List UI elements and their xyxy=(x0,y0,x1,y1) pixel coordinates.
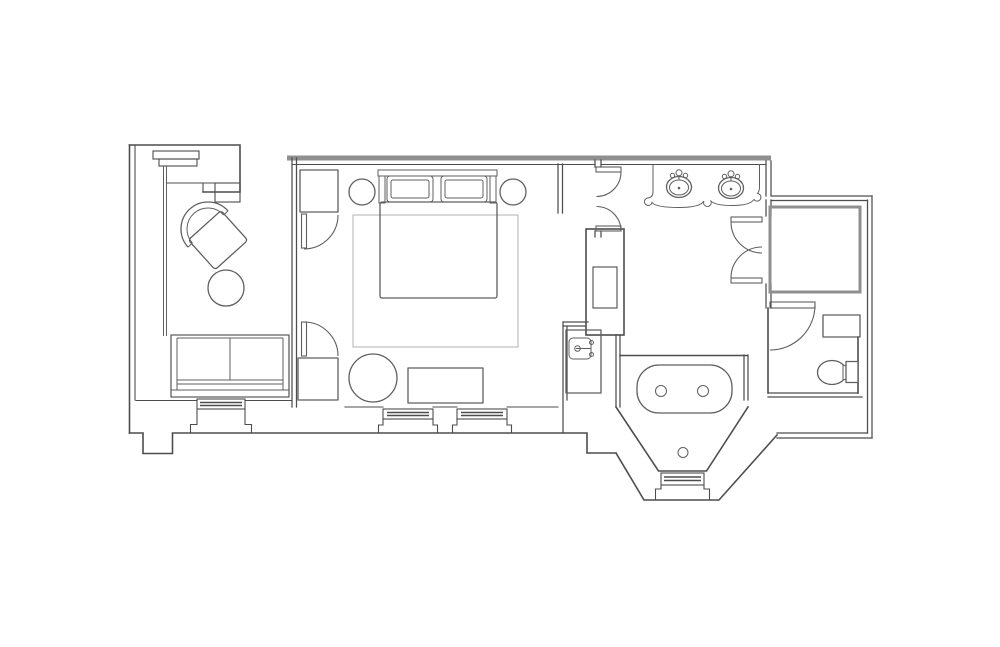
wc-walls xyxy=(768,308,858,393)
wet-bar xyxy=(566,330,601,393)
closet-door-leaf xyxy=(302,322,307,356)
bathtub xyxy=(637,365,732,413)
hall-lower-wall xyxy=(563,322,588,433)
service-shaft xyxy=(593,267,617,308)
bay-fixture xyxy=(678,448,688,458)
window-frame xyxy=(457,409,507,419)
sofa-cushions xyxy=(171,338,289,390)
mattress xyxy=(380,202,497,298)
window-glazing xyxy=(664,477,701,481)
bench xyxy=(408,368,483,403)
bedroom xyxy=(298,170,526,433)
door-swing xyxy=(770,305,815,350)
sitting-bay-window xyxy=(191,399,252,433)
southeast-wall xyxy=(777,433,872,438)
closet-door-leaf xyxy=(302,214,307,248)
east-wall xyxy=(868,196,873,438)
floor-plan-page xyxy=(0,0,1000,647)
closet-north xyxy=(300,170,338,249)
nightstand-left xyxy=(349,179,375,205)
closet-door-swing xyxy=(304,215,338,249)
sitting-bedroom-divider xyxy=(292,158,297,407)
window-glazing xyxy=(387,413,429,416)
door-leaf-upper xyxy=(731,217,762,222)
sitting-area xyxy=(170,191,289,433)
window-frame xyxy=(197,399,245,409)
wet-bar-counter xyxy=(566,330,601,393)
wc-shelf xyxy=(823,315,860,337)
door-swing-upper xyxy=(731,222,762,253)
door-leaf xyxy=(770,302,815,308)
window-frame xyxy=(383,409,433,419)
closet-box xyxy=(300,170,338,212)
closet-south xyxy=(298,322,338,400)
vanity-sink-left xyxy=(667,170,692,198)
entry-threshold xyxy=(153,151,199,159)
window-glazing xyxy=(200,403,242,406)
door-swing-lower xyxy=(731,247,762,278)
window-glazing xyxy=(461,413,503,416)
closet-box xyxy=(298,358,338,400)
armchair-seat xyxy=(188,211,247,270)
closet-door-swing xyxy=(304,322,338,356)
round-side-table xyxy=(208,270,244,306)
round-table xyxy=(349,354,397,402)
area-rug xyxy=(353,215,518,347)
shower-enclosure xyxy=(770,207,860,292)
tub-bay xyxy=(616,365,748,500)
sofa xyxy=(171,335,289,397)
entry-wall-line xyxy=(164,166,167,336)
bathroom-west-wall xyxy=(616,335,620,407)
armchair xyxy=(170,191,252,273)
nightstand-right xyxy=(500,179,526,205)
king-bed xyxy=(378,170,497,298)
wc-door xyxy=(770,302,815,350)
shower-room xyxy=(731,207,860,292)
partition-walls xyxy=(292,158,771,433)
door-swing-lower xyxy=(597,207,622,232)
entry-closet-nook xyxy=(130,145,241,336)
double-vanity xyxy=(644,165,760,208)
door-leaf-upper xyxy=(596,167,621,172)
bathroom-entry-doors xyxy=(595,160,621,237)
tub-faucet xyxy=(698,386,709,397)
bedroom-bay-window-left xyxy=(379,409,438,433)
toilet xyxy=(818,361,859,385)
floor-plan-drawing xyxy=(0,0,1000,647)
vanity-sink-right xyxy=(719,171,744,199)
shower-double-doors xyxy=(731,217,762,283)
bedroom-east-wall xyxy=(558,164,563,213)
toilet-tank xyxy=(846,362,858,383)
tub-drain xyxy=(656,386,667,397)
bay-window xyxy=(656,473,710,500)
service-column xyxy=(586,229,624,335)
bathroom xyxy=(616,165,761,501)
water-closet xyxy=(768,302,862,397)
wc-west-wall xyxy=(744,355,748,400)
bay-walls xyxy=(616,407,748,471)
armchair-back xyxy=(170,191,228,247)
headboard xyxy=(378,170,497,176)
window-frame xyxy=(661,473,704,485)
door-swing-upper xyxy=(597,172,622,197)
south-wall xyxy=(130,433,778,500)
door-leaf-lower xyxy=(731,278,762,283)
bedroom-bay-window-right xyxy=(453,409,512,433)
toilet-bowl xyxy=(818,361,847,385)
